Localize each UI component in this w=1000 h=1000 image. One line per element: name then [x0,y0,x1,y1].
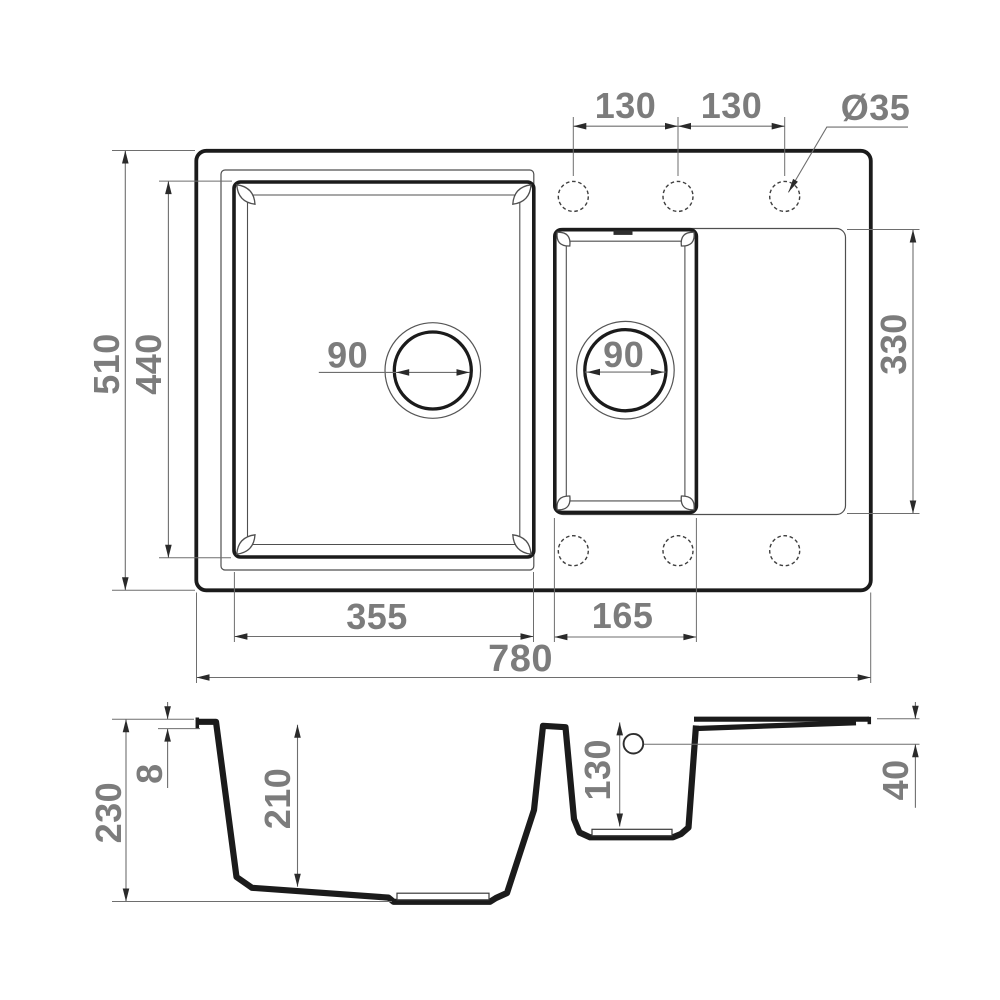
svg-text:510: 510 [86,333,127,395]
svg-text:90: 90 [327,335,368,376]
svg-text:Ø35: Ø35 [841,87,911,128]
svg-text:355: 355 [346,596,408,637]
svg-text:210: 210 [257,768,298,830]
svg-text:130: 130 [577,739,618,801]
svg-text:130: 130 [701,85,763,126]
svg-text:330: 330 [873,313,914,375]
svg-text:230: 230 [88,782,129,844]
svg-text:440: 440 [128,333,169,395]
svg-text:780: 780 [488,638,553,680]
svg-text:90: 90 [603,334,644,375]
svg-text:165: 165 [592,595,654,636]
svg-text:40: 40 [875,759,916,800]
svg-text:8: 8 [129,763,170,784]
svg-text:130: 130 [595,85,657,126]
